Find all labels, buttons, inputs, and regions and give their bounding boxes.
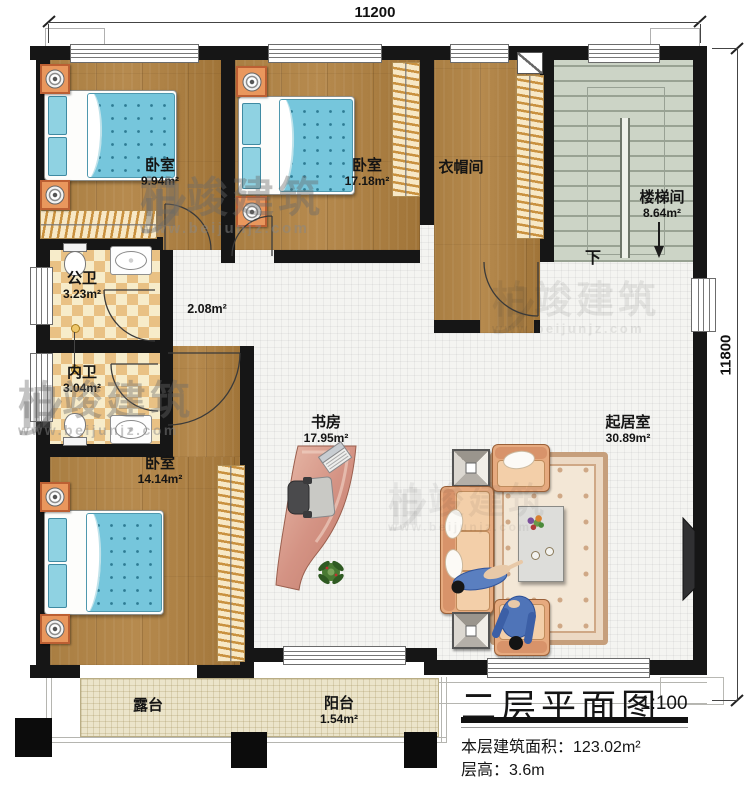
label-bedroom1: 卧室 9.94m² [141,158,179,188]
stair-down-arrow [654,222,664,258]
dimension-top-value: 11200 [355,4,396,21]
column [15,718,52,757]
title-underline-thin [461,727,688,728]
floor-height-label: 层高： [461,762,509,779]
room-area: 3.04m² [63,382,101,395]
room-name: 起居室 [605,415,650,432]
label-bedroom3: 卧室 14.14m² [138,456,183,486]
room-name: 露台 [133,698,163,715]
label-terrace: 露台 [133,698,163,715]
room-area: 14.14m² [138,473,183,486]
dimension-line-top [48,22,700,23]
room-name: 书房 [304,415,349,432]
floor-height-line: 层高：3.6m [461,756,545,780]
room-name: 衣帽间 [438,160,483,177]
label-stairwell: 楼梯间 8.64m² [639,190,684,220]
dimension-ext [48,24,49,43]
room-name: 阳台 [320,696,358,713]
stair-direction-label: 下 [585,244,601,268]
label-living: 起居室 30.89m² [605,415,650,445]
label-balcony: 阳台 1.54m² [320,696,358,726]
label-study: 书房 17.95m² [304,415,349,445]
potted-plant [317,559,346,586]
dimension-ext [712,700,737,701]
room-area: 3.23m² [63,288,101,301]
room-name: 内卫 [63,365,101,382]
title-underline [461,717,688,723]
dimension-line-right [737,48,738,700]
label-bath-private: 内卫 3.04m² [63,365,101,395]
column [404,732,437,768]
label-bedroom2: 卧室 17.18m² [345,158,390,188]
tv [683,518,695,600]
person-lying [452,562,522,594]
room-name: 卧室 [141,158,179,175]
room-area: 30.89m² [605,432,650,445]
column [231,732,267,768]
room-name: 卧室 [345,158,390,175]
dimension-ticks [43,16,743,706]
room-area: 17.18m² [345,175,390,188]
floor-area-line: 本层建筑面积：123.02m² [461,733,641,757]
room-area: 9.94m² [141,175,179,188]
room-area: 2.08m² [187,302,227,316]
study-desk [276,446,356,590]
plan-scale: 1:100 [640,693,688,715]
label-cloakroom: 衣帽间 [438,160,483,177]
dimension-ext [700,24,701,43]
door-arcs [104,204,538,425]
floor-height-value: 3.6m [509,762,545,779]
floor-area-label: 本层建筑面积： [461,739,573,756]
dimension-ext [712,48,737,49]
office-chair [288,477,335,519]
person-sitting [496,593,539,650]
dimension-right-value: 11800 [718,316,735,376]
room-area: 17.95m² [304,432,349,445]
label-hallway-area: 2.08m² [187,302,227,316]
floor-plan-page: 11200 11800 卧室 9.94m² 卧室 17.18m² 衣帽间 楼梯间… [0,0,750,787]
room-name: 卧室 [138,456,183,473]
floor-area-value: 123.02m² [573,739,641,756]
room-name: 公卫 [63,271,101,288]
plan-overlay-graphics [0,0,750,787]
room-name: 楼梯间 [639,190,684,207]
room-area: 8.64m² [639,207,684,220]
label-bath-public: 公卫 3.23m² [63,271,101,301]
room-area: 1.54m² [320,713,358,726]
